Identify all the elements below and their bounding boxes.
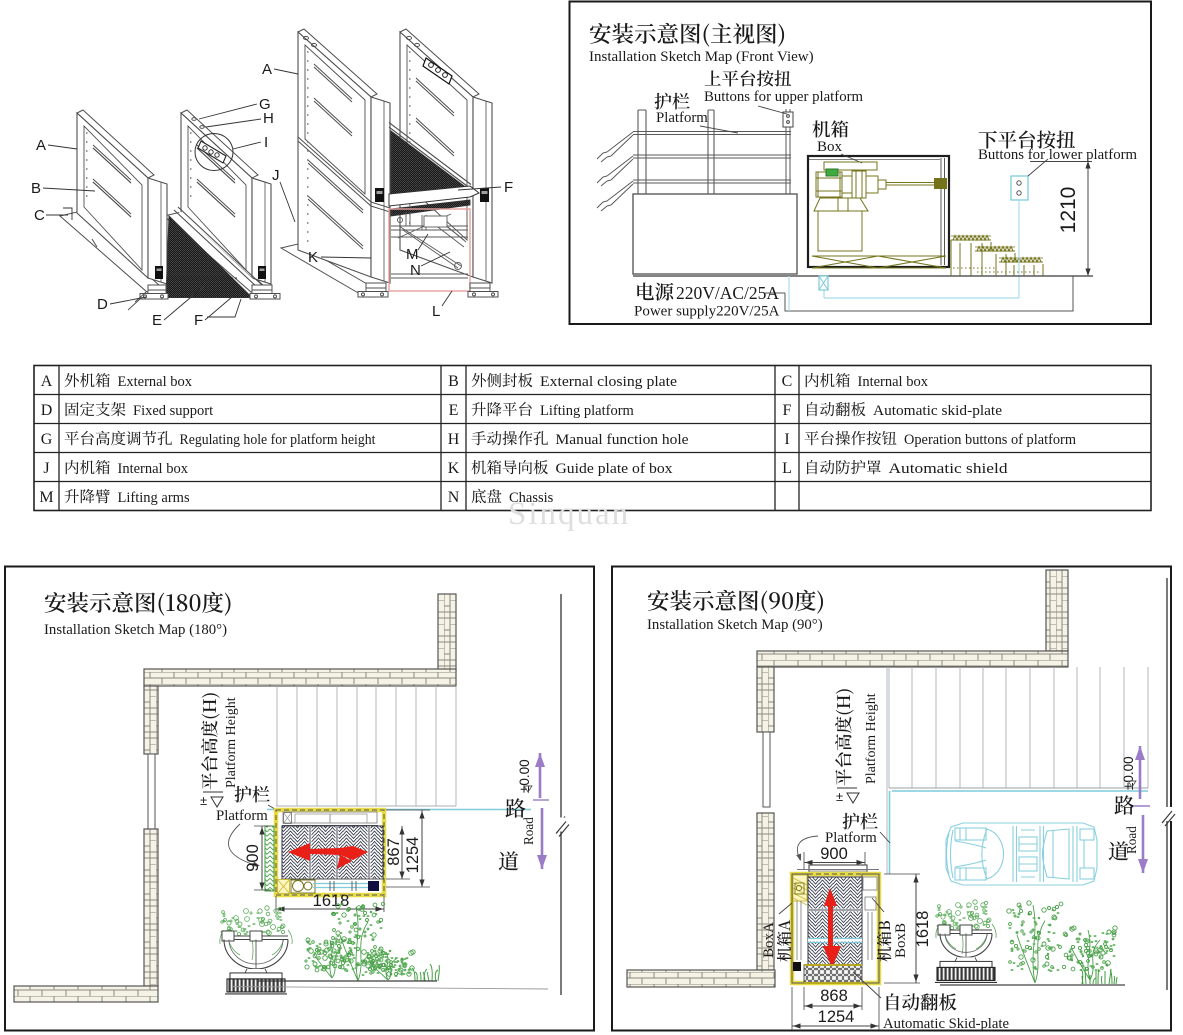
- svg-text:D: D: [97, 296, 108, 313]
- svg-text:Platform: Platform: [825, 830, 877, 846]
- svg-text:A: A: [36, 137, 46, 154]
- svg-text:220V/AC/25A: 220V/AC/25A: [676, 283, 779, 303]
- svg-text:H: H: [263, 110, 274, 127]
- svg-text:Automatic shield: Automatic shield: [889, 461, 1009, 477]
- svg-text:B: B: [448, 373, 459, 390]
- svg-text:E: E: [152, 312, 162, 329]
- svg-text:N: N: [410, 262, 421, 279]
- svg-text:Buttons for lower platform: Buttons for lower platform: [978, 147, 1138, 163]
- svg-text:L: L: [432, 303, 440, 320]
- svg-text:A: A: [41, 373, 53, 390]
- svg-text:Power supply220V/25A: Power supply220V/25A: [634, 304, 780, 320]
- svg-text:J: J: [272, 167, 280, 184]
- svg-text:H: H: [448, 431, 460, 448]
- svg-text:I: I: [264, 134, 268, 151]
- svg-text:Box: Box: [817, 139, 843, 155]
- svg-text:1618: 1618: [313, 892, 350, 910]
- svg-text:Platform Height: Platform Height: [864, 693, 879, 784]
- svg-text:900: 900: [820, 845, 848, 863]
- svg-text:868: 868: [820, 987, 848, 1005]
- svg-text:K: K: [448, 460, 460, 477]
- svg-text:Fixed support: Fixed support: [133, 403, 213, 419]
- svg-text:N: N: [448, 489, 460, 506]
- svg-text:External box: External box: [118, 374, 193, 390]
- svg-text:L: L: [782, 460, 792, 477]
- svg-text:F: F: [783, 402, 792, 419]
- svg-text:M: M: [406, 246, 419, 263]
- svg-text:Road: Road: [1124, 826, 1139, 854]
- svg-text:D: D: [41, 402, 53, 419]
- svg-text:B: B: [31, 180, 41, 197]
- svg-text:Buttons for upper platform: Buttons for upper platform: [704, 89, 864, 105]
- svg-text:Platform: Platform: [656, 110, 708, 126]
- svg-text:Road: Road: [521, 817, 536, 845]
- svg-text:Platform Height: Platform Height: [224, 697, 239, 788]
- svg-text:Lifting platform: Lifting platform: [540, 403, 635, 419]
- svg-text:M: M: [39, 489, 53, 506]
- svg-text:Installation Sketch Map (180°): Installation Sketch Map (180°): [44, 622, 227, 638]
- svg-text:867: 867: [385, 838, 403, 866]
- svg-text:C: C: [782, 373, 793, 390]
- svg-text:F: F: [194, 312, 203, 329]
- svg-text:BoxA: BoxA: [761, 922, 777, 958]
- svg-text:Manual function hole: Manual function hole: [556, 432, 689, 448]
- svg-text:E: E: [449, 402, 459, 419]
- svg-text:G: G: [41, 431, 53, 448]
- svg-text:Installation Sketch Map (90°): Installation Sketch Map (90°): [647, 617, 823, 633]
- svg-text:J: J: [43, 460, 49, 477]
- svg-text:K: K: [308, 249, 318, 266]
- svg-text:Platform: Platform: [216, 808, 268, 824]
- svg-text:External closing plate: External closing plate: [540, 374, 677, 390]
- svg-text:1618: 1618: [914, 911, 932, 948]
- svg-text:±: ±: [200, 793, 207, 808]
- svg-text:±0.00: ±0.00: [517, 759, 532, 793]
- svg-text:Lifting arms: Lifting arms: [118, 490, 190, 506]
- svg-text:1254: 1254: [404, 837, 422, 874]
- svg-text:Operation buttons of platform: Operation buttons of platform: [904, 432, 1077, 448]
- svg-text:Automatic skid-plate: Automatic skid-plate: [873, 403, 1002, 419]
- svg-text:A: A: [262, 61, 272, 78]
- svg-text:Internal box: Internal box: [118, 461, 189, 477]
- svg-text:Regulating hole for platform h: Regulating hole for platform height: [180, 432, 376, 448]
- svg-text:900: 900: [244, 844, 262, 872]
- svg-text:C: C: [34, 207, 45, 224]
- svg-text:Installation Sketch Map (Front: Installation Sketch Map (Front View): [589, 49, 814, 65]
- svg-text:Automatic Skid-plate: Automatic Skid-plate: [883, 1016, 1009, 1032]
- svg-text:Guide plate of box: Guide plate of box: [556, 461, 674, 477]
- svg-text:Sinquan: Sinquan: [508, 496, 630, 532]
- svg-text:Internal box: Internal box: [858, 374, 929, 390]
- svg-text:I: I: [784, 431, 789, 448]
- svg-text:F: F: [504, 179, 513, 196]
- svg-text:BoxB: BoxB: [893, 923, 909, 958]
- svg-text:1210: 1210: [1057, 187, 1080, 234]
- svg-text:±: ±: [836, 789, 843, 804]
- svg-text:1254: 1254: [818, 1008, 855, 1026]
